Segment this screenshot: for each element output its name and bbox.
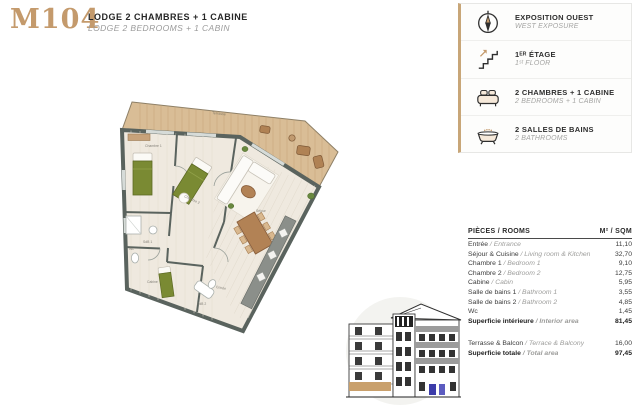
room-name-fr: Entrée [468,241,488,248]
room-name-fr: Séjour & Cuisine [468,251,519,258]
bedrooms-label-fr: 2 CHAMBRES + 1 CABINE [515,88,614,97]
room-name-fr: Salle de bains 1 [468,289,516,296]
sdb1-label: SdB 1 [143,240,152,244]
title-english: LODGE 2 BEDROOMS + 1 CABIN [88,23,248,34]
bed-icon [475,84,501,110]
terrace-label-fr: Terrasse & Balcon [468,340,523,347]
room-area: 5,95 [619,279,632,286]
room-name-en: Living room & Kitchen [519,251,591,258]
room-area: 3,55 [619,289,632,296]
room-name-fr: Cabine [468,279,490,286]
room-area: 9,10 [619,260,632,267]
unit-code: M104 [10,4,100,35]
table-header-rooms: PIÈCES / ROOMS [468,228,530,235]
title-french: LODGE 2 CHAMBRES + 1 CABINE [88,12,248,23]
room-name-en: Bedroom 1 [502,260,541,267]
room-area: 4,85 [619,299,632,306]
table-row-total: Superficie totaleTotal area 97,45 [468,350,632,360]
table-row: Chambre 1Bedroom 1 9,10 [468,260,632,270]
table-row-terrace: Terrasse & BalconTerrace & Balcony 16,00 [468,340,632,350]
subtotal-label-en: Interior area [534,318,579,325]
terrace-label-en: Terrace & Balcony [523,340,584,347]
subtotal-label-fr: Superficie intérieure [468,318,534,325]
room-area: 12,75 [615,270,632,277]
info-row-floor: 1ᴱᴿ ÉTAGE 1ˢᵗ FLOOR [461,40,631,77]
total-label-en: Total area [521,350,559,357]
table-header: PIÈCES / ROOMS M² / SQM [468,226,632,239]
info-row-bedrooms: 2 CHAMBRES + 1 CABINE 2 BEDROOMS + 1 CAB… [461,78,631,115]
elevation-unit-highlight [349,382,391,391]
floor-label-en: 1ˢᵗ FLOOR [515,59,556,68]
room-name-en: Bathroom 2 [516,299,557,306]
elevation-blue-window [429,384,436,395]
brochure-page: M104 LODGE 2 CHAMBRES + 1 CABINE LODGE 2… [0,0,640,405]
room-name-en: Entrance [488,241,521,248]
room-name-en: Bedroom 2 [502,270,541,277]
bedrooms-label-en: 2 BEDROOMS + 1 CABIN [515,97,614,106]
areas-table: PIÈCES / ROOMS M² / SQM EntréeEntrance 1… [468,226,632,360]
info-panel: EXPOSITION OUEST WEST EXPOSURE 1ᴱᴿ ÉTAGE… [458,3,632,153]
page-title: LODGE 2 CHAMBRES + 1 CABINE LODGE 2 BEDR… [88,12,248,34]
terrace-value: 16,00 [615,340,632,347]
building-elevation [333,296,473,405]
total-label-fr: Superficie totale [468,350,521,357]
table-row: Salle de bains 1Bathroom 1 3,55 [468,289,632,299]
room-name-fr: Chambre 1 [468,260,502,267]
bathrooms-label-en: 2 BATHROOMS [515,134,594,143]
cabine-label: Cabine [147,280,158,284]
room-area: 32,70 [615,251,632,258]
table-row: Salle de bains 2Bathroom 2 4,85 [468,299,632,309]
bathtub-icon [475,121,501,147]
table-row: Séjour & CuisineLiving room & Kitchen 32… [468,251,632,261]
room-name-en: Cabin [490,279,513,286]
exposure-label-fr: EXPOSITION OUEST [515,13,594,22]
floor-label-fr: 1ᴱᴿ ÉTAGE [515,50,556,59]
table-row-subtotal: Superficie intérieureInterior area 81,45 [468,318,632,328]
stairs-icon [475,46,501,72]
compass-icon [475,9,501,35]
room-name-fr: Salle de bains 2 [468,299,516,306]
room-name-fr: Wc [468,308,478,315]
floor-plan: Terrasse [90,85,360,355]
room-area: 11,10 [615,241,632,248]
table-header-sqm: M² / SQM [600,228,632,235]
table-row: Wc 1,45 [468,308,632,318]
room-name-fr: Chambre 2 [468,270,502,277]
exposure-label-en: WEST EXPOSURE [515,22,594,31]
table-row: EntréeEntrance 11,10 [468,241,632,251]
sejour-label: Séjour [256,209,267,213]
room-area: 1,45 [619,308,632,315]
table-row: Chambre 2Bedroom 2 12,75 [468,270,632,280]
table-row: CabineCabin 5,95 [468,279,632,289]
sdb2-label: SdB 2 [197,302,206,306]
wc-label: Wc [129,247,134,251]
room-name-en: Bathroom 1 [516,289,557,296]
info-row-exposure: EXPOSITION OUEST WEST EXPOSURE [461,4,631,40]
total-value: 97,45 [615,350,632,357]
subtotal-value: 81,45 [615,318,632,325]
bathrooms-label-fr: 2 SALLES DE BAINS [515,125,594,134]
info-row-bathrooms: 2 SALLES DE BAINS 2 BATHROOMS [461,115,631,152]
chambre1-label: Chambre 1 [145,144,162,148]
